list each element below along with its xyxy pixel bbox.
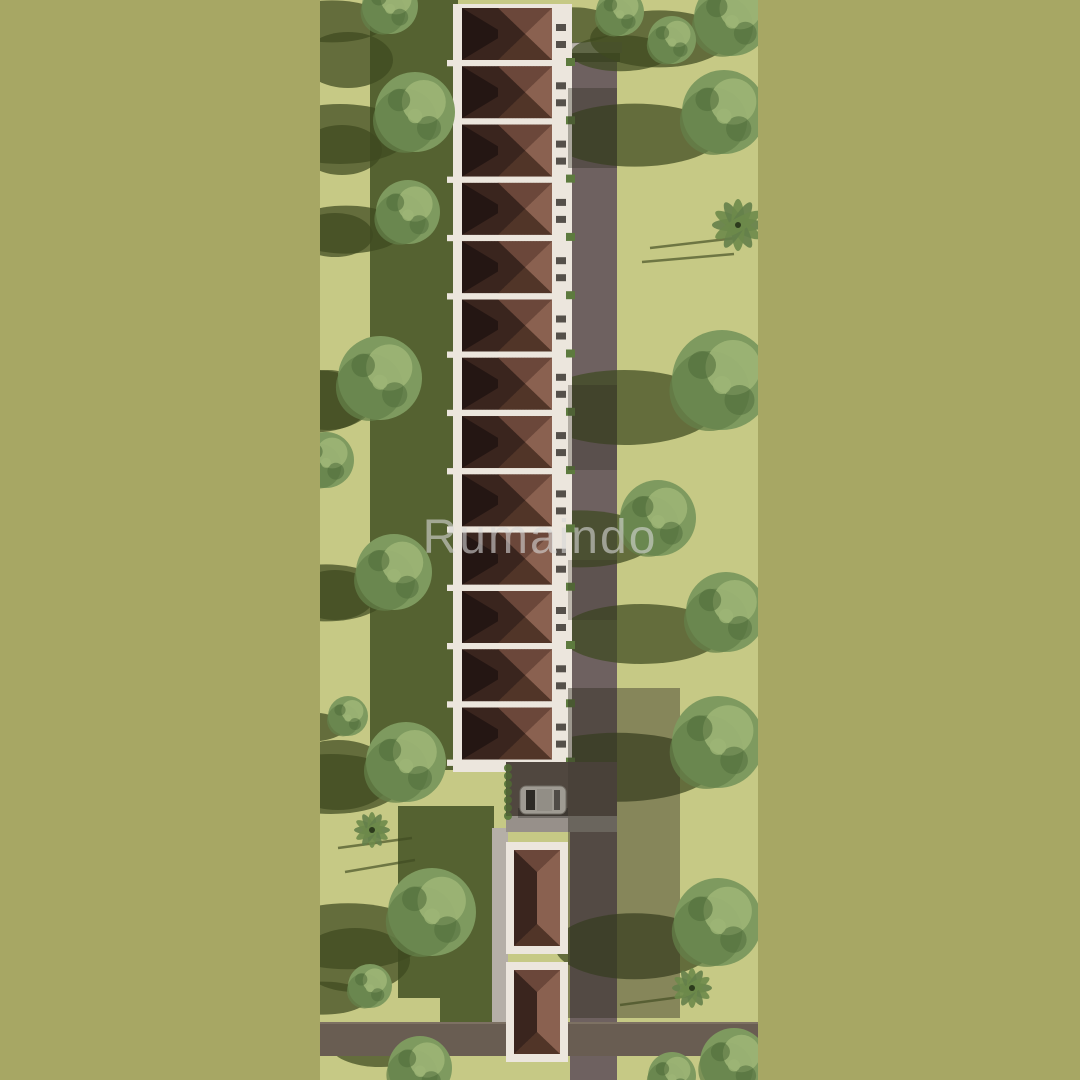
site-plan-scene <box>320 0 758 1080</box>
right-border <box>758 0 1080 1080</box>
render-photo <box>320 0 758 1080</box>
aerial-site-plan-render: Rumaindo <box>0 0 1080 1080</box>
tree <box>692 0 758 57</box>
left-border <box>0 0 320 1080</box>
